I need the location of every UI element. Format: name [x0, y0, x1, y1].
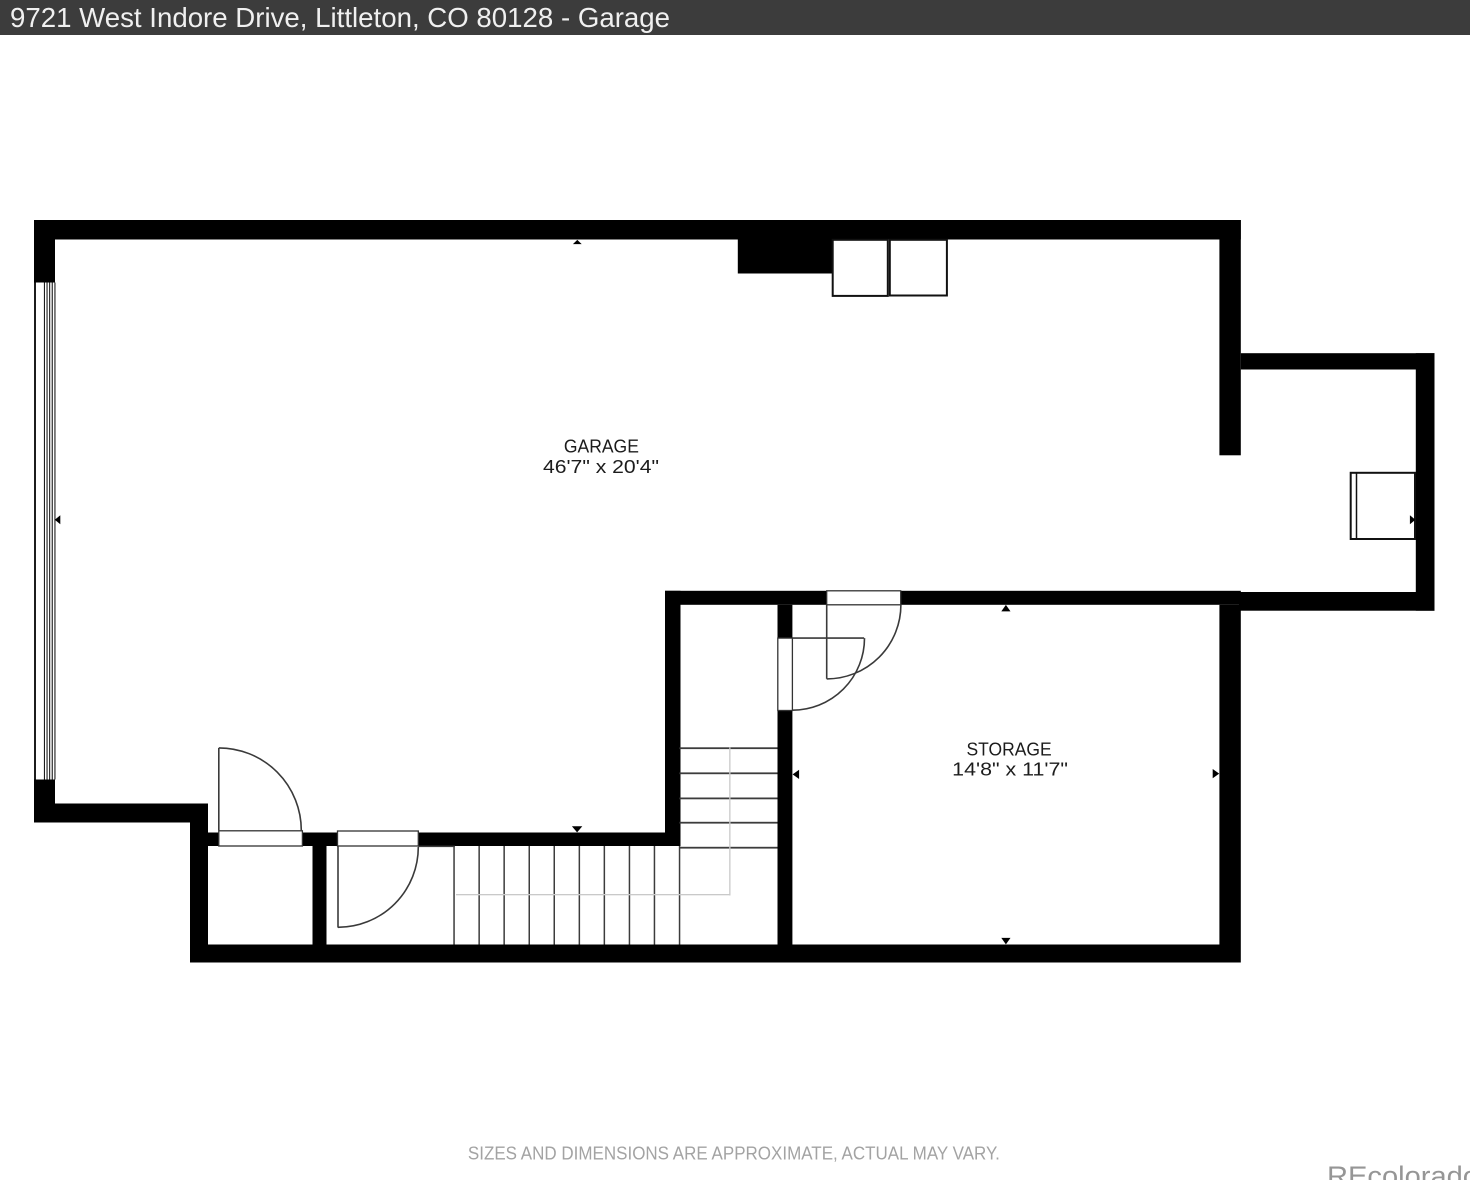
svg-text:46'7" x 20'4": 46'7" x 20'4": [543, 456, 659, 477]
svg-text:9721 West Indore Drive, Little: 9721 West Indore Drive, Littleton, CO 80…: [10, 2, 670, 33]
svg-text:14'8" x 11'7": 14'8" x 11'7": [952, 759, 1068, 780]
svg-text:STORAGE: STORAGE: [967, 739, 1052, 760]
svg-text:REcolorado: REcolorado: [1327, 1160, 1470, 1180]
svg-text:SIZES AND DIMENSIONS ARE APPRO: SIZES AND DIMENSIONS ARE APPROXIMATE, AC…: [468, 1142, 1000, 1163]
svg-text:GARAGE: GARAGE: [564, 435, 639, 456]
